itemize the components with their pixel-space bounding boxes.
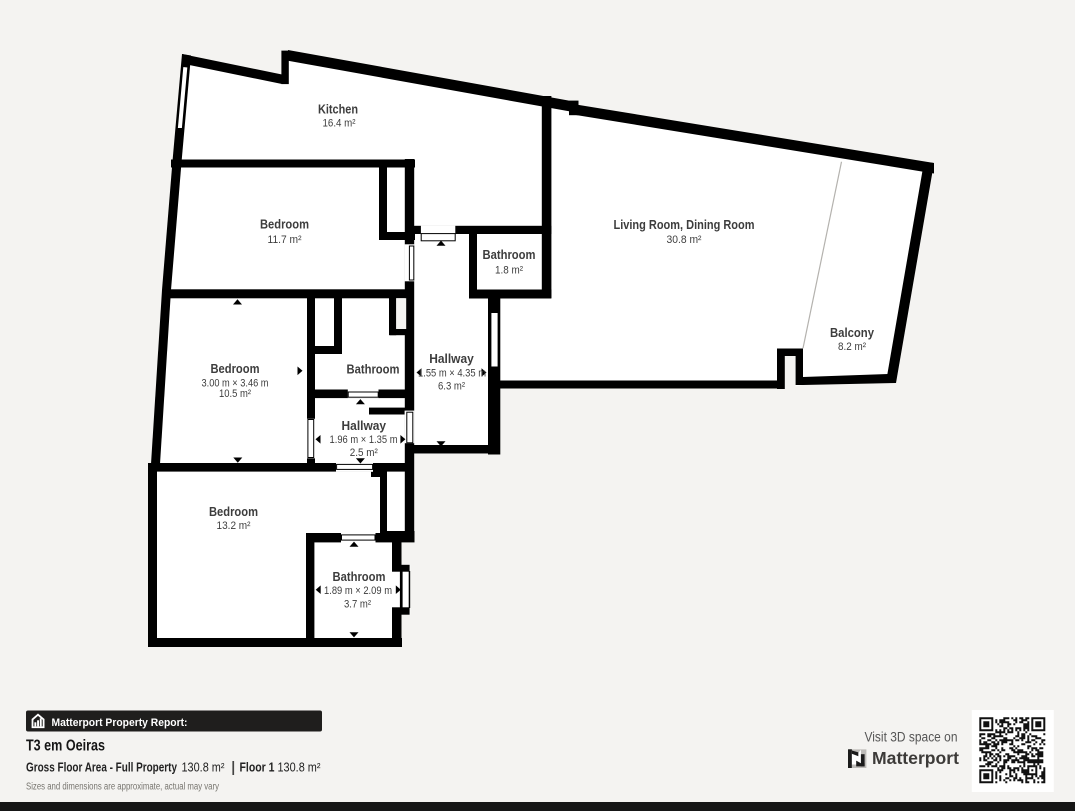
svg-text:2.5 m²: 2.5 m² [350,447,378,459]
svg-text:30.8 m²: 30.8 m² [667,234,702,246]
svg-text:T3 em Oeiras: T3 em Oeiras [26,738,105,755]
svg-text:Bedroom: Bedroom [260,218,309,232]
svg-text:Balcony: Balcony [830,326,874,340]
svg-text:6.3 m²: 6.3 m² [438,381,465,393]
svg-text:3.7 m²: 3.7 m² [344,599,371,611]
svg-text:Bathroom: Bathroom [347,363,400,377]
svg-text:Matterport: Matterport [872,748,959,768]
svg-text:Bathroom: Bathroom [333,570,386,584]
svg-text:Matterport Property Report:: Matterport Property Report: [52,717,188,729]
svg-text:Hallway: Hallway [429,352,474,366]
svg-text:Visit 3D space on: Visit 3D space on [865,730,958,745]
svg-text:Bathroom: Bathroom [483,248,536,262]
svg-text:11.7 m²: 11.7 m² [268,234,302,246]
svg-text:1.55 m × 4.35 m: 1.55 m × 4.35 m [418,368,486,380]
svg-text:Bedroom: Bedroom [209,505,258,519]
svg-text:1.8 m²: 1.8 m² [495,265,523,277]
svg-text:Living Room, Dining Room: Living Room, Dining Room [614,218,755,232]
svg-text:1.89 m × 2.09 m: 1.89 m × 2.09 m [324,585,392,597]
svg-text:Sizes and dimensions are appro: Sizes and dimensions are approximate, ac… [26,782,219,793]
svg-text:Bedroom: Bedroom [211,362,260,376]
svg-text:Hallway: Hallway [342,419,387,433]
svg-text:Kitchen: Kitchen [318,103,358,117]
svg-text:130.8 m²: 130.8 m² [278,761,321,775]
svg-text:130.8 m²: 130.8 m² [182,761,225,775]
svg-text:1.96 m × 1.35 m: 1.96 m × 1.35 m [330,434,398,446]
svg-text:16.4 m²: 16.4 m² [323,118,356,130]
svg-text:Floor 1: Floor 1 [240,761,275,775]
svg-text:13.2 m²: 13.2 m² [217,520,251,532]
svg-text:8.2 m²: 8.2 m² [838,341,866,353]
svg-text:10.5 m²: 10.5 m² [219,388,251,400]
svg-text:Gross Floor Area - Full Proper: Gross Floor Area - Full Property [26,761,177,775]
